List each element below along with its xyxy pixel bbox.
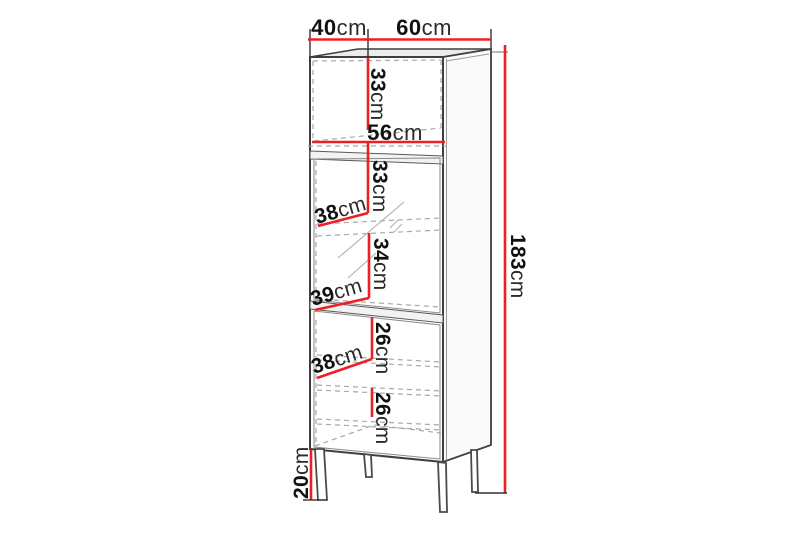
cabinet-side-panel [443, 49, 491, 462]
label-total-height: 183cm [506, 234, 529, 299]
label-niche-width: 56cm [367, 120, 423, 145]
leg-front-left [315, 449, 327, 500]
label-lower-upper-height: 26cm [371, 322, 394, 375]
label-niche-height: 33cm [366, 68, 389, 121]
furniture-dimension-diagram: 40cm 60cm 33cm 56cm 33cm 38cm 34cm 39cm … [0, 0, 800, 533]
label-depth: 40cm [311, 15, 367, 40]
label-glass-upper-height: 33cm [368, 160, 391, 213]
diagram-canvas: 40cm 60cm 33cm 56cm 33cm 38cm 34cm 39cm … [0, 0, 800, 533]
leg-back-right [471, 450, 478, 492]
label-legs-height: 20cm [290, 446, 313, 499]
label-lower-bottom-height: 26cm [371, 392, 394, 445]
leg-front-right [438, 462, 447, 512]
label-width: 60cm [396, 15, 452, 40]
cabinet-outline [310, 49, 491, 462]
leg-back-left [364, 454, 372, 477]
label-glass-lower-height: 34cm [369, 238, 392, 291]
